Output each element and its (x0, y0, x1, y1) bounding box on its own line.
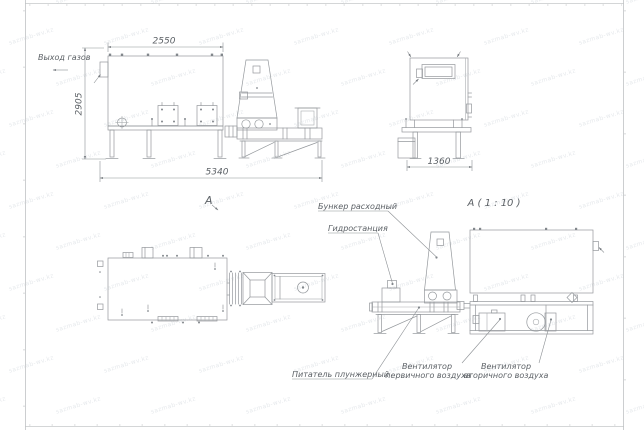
flange-port (116, 116, 129, 129)
plan-position-marks (121, 263, 224, 316)
end-hydraulic-box (398, 138, 415, 158)
plan-feeder-box (272, 274, 325, 303)
dim-1360-label: 1360 (428, 157, 451, 167)
base-frame (470, 302, 593, 335)
plan-flange-stack (227, 271, 242, 307)
gas-outlet-label: Выход газов (38, 53, 91, 62)
feeder-callout-label: Питатель плунжерный (292, 370, 389, 379)
view-a110-label: А ( 1 : 10 ) (467, 198, 521, 209)
inspection-hatch-2 (197, 103, 217, 126)
dim-1360: 1360 (407, 157, 472, 171)
secondary-fan-label-line2: вторичного воздуха (464, 371, 549, 380)
hydraulic-station (382, 281, 400, 303)
end-hatch (413, 65, 455, 85)
end-body (408, 52, 469, 121)
bolt-studs (151, 118, 186, 126)
drawing-sheet: sazmab-wv.kzsazmab-wv.kzsazmab-wv.kzsazm… (0, 0, 644, 430)
annotations: Бункер расходный Гидростанция Питатель п… (292, 202, 552, 380)
furnace-body (108, 54, 223, 126)
sheet-frame (24, 0, 625, 430)
hopper-callout-label: Бункер расходный (318, 202, 397, 211)
feeder-stand (239, 141, 325, 158)
detail-furnace (470, 228, 604, 303)
hydraulic-callout-label: Гидростанция (328, 224, 388, 233)
secondary-fan-label-line1: Вентилятор (481, 362, 531, 371)
primary-air-fan (473, 310, 505, 331)
hydraulic-callout: Гидростанция (328, 224, 394, 285)
view-plan (98, 248, 326, 324)
dim-2905-label: 2905 (75, 92, 85, 115)
inspection-hatch-1 (158, 103, 178, 126)
feed-hopper (237, 60, 277, 118)
drawing-canvas: 2550 2905 5340 Выход газов А (0, 0, 644, 430)
dim-5340: 5340 (100, 160, 322, 182)
view-a-label: А (204, 194, 213, 207)
dim-2905: 2905 (75, 48, 107, 159)
gas-outlet-callout: Выход газов (38, 53, 91, 70)
primary-fan-label-line1: Вентилятор (402, 362, 452, 371)
discharge-riser (295, 108, 320, 128)
end-side-fittings (467, 93, 472, 117)
view-a-marker: А (204, 194, 218, 210)
detail-feeder-housing (425, 290, 471, 310)
support-frame (106, 126, 226, 159)
plan-hopper-top (243, 273, 272, 305)
plan-body (98, 248, 228, 321)
secondary-fan-callout: Вентилятор вторичного воздуха (464, 318, 553, 380)
view-detail (370, 228, 605, 334)
primary-fan-label-line2: первичного воздуха (385, 371, 471, 380)
dim-2550: 2550 (108, 37, 223, 53)
feeder-callout: Питатель плунжерный (292, 306, 420, 379)
view-end: 1360 А ( 1 : 10 ) (398, 52, 521, 210)
dim-5340-label: 5340 (206, 168, 229, 178)
secondary-air-fan (527, 313, 556, 331)
view-side: 2550 2905 5340 Выход газов А (38, 37, 325, 211)
detail-hopper (425, 232, 456, 290)
detail-feeder (370, 302, 461, 334)
gas-outlet-stub (94, 62, 108, 83)
dim-2550-label: 2550 (153, 37, 176, 47)
